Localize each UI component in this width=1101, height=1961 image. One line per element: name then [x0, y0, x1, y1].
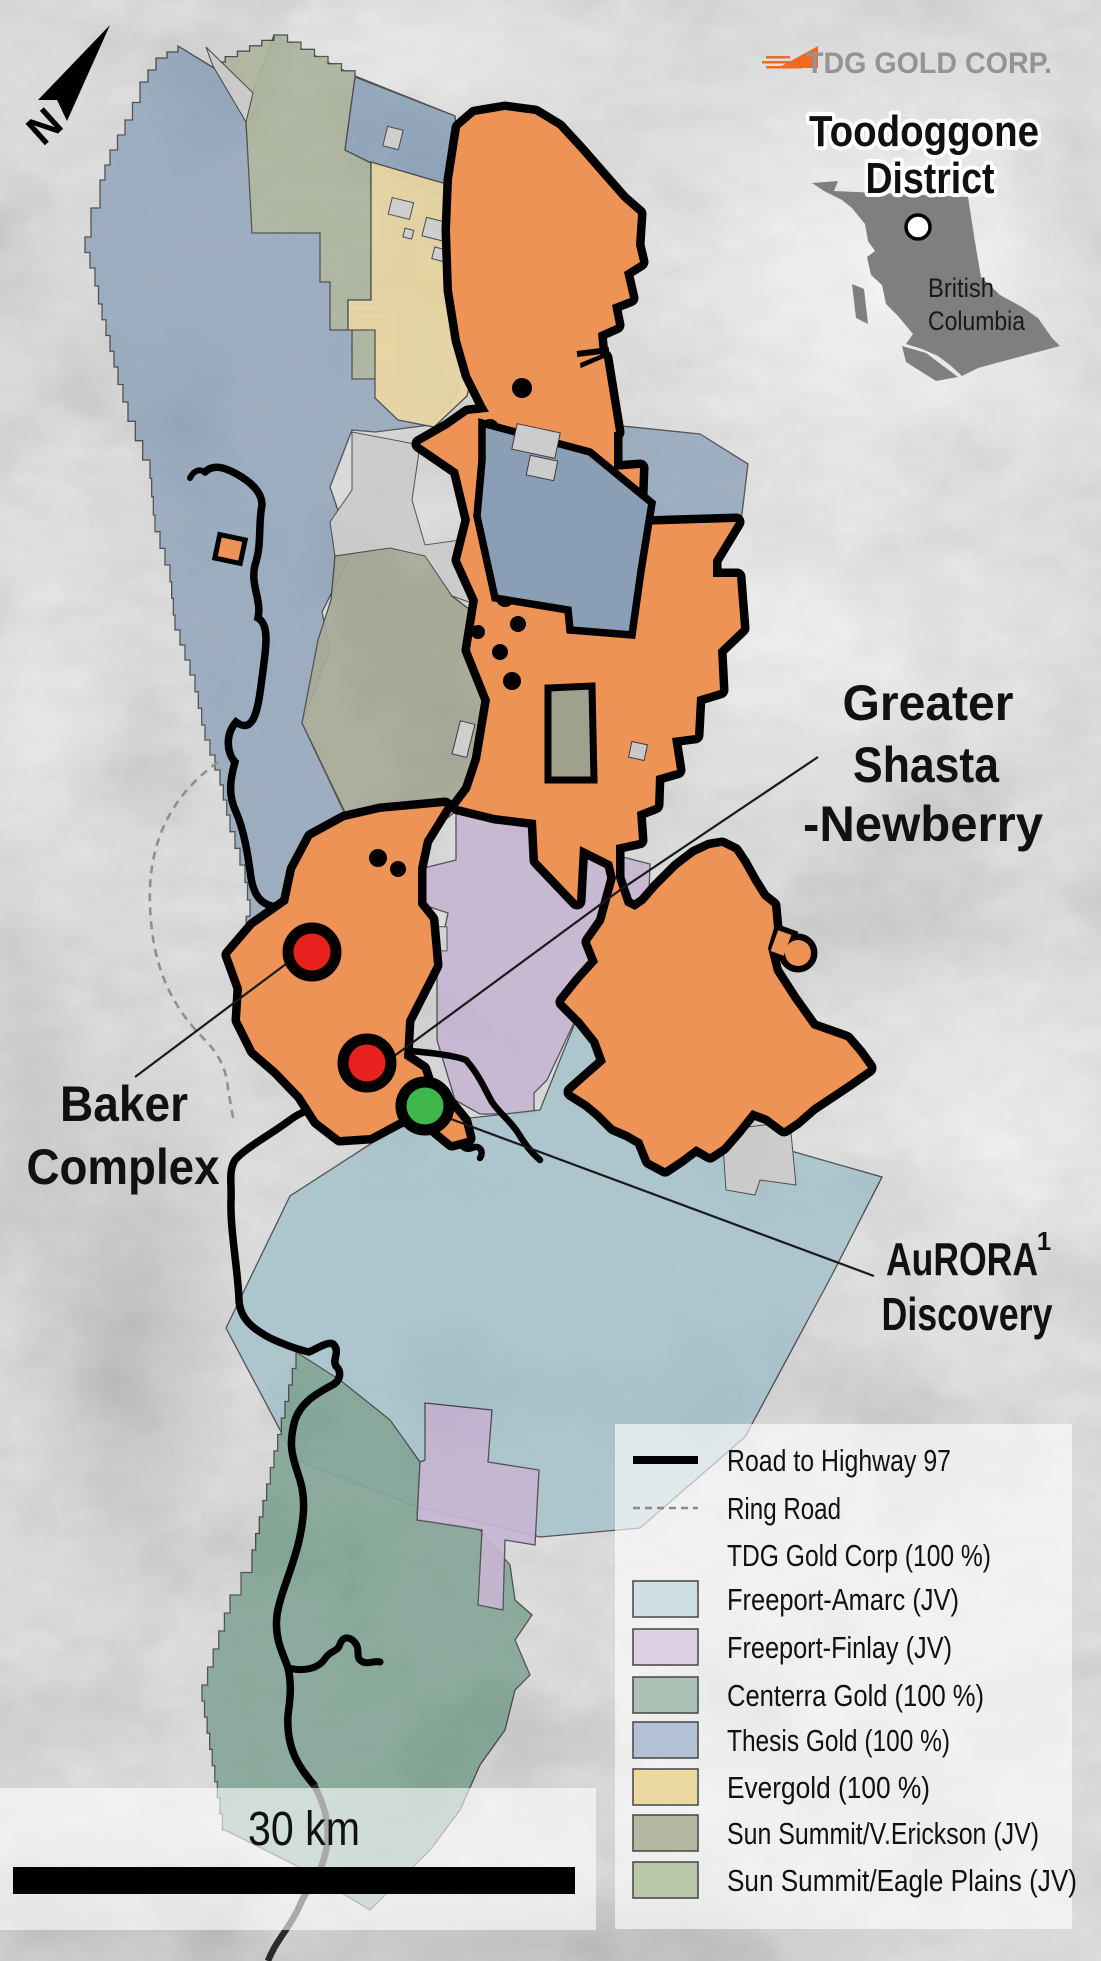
svg-text:Toodoggone: Toodoggone — [809, 107, 1039, 156]
svg-text:Road to Highway 97: Road to Highway 97 — [727, 1443, 951, 1478]
svg-text:Thesis Gold (100 %): Thesis Gold (100 %) — [727, 1723, 950, 1758]
svg-text:-Newberry: -Newberry — [803, 796, 1043, 852]
svg-text:1: 1 — [1037, 1226, 1051, 1256]
svg-text:Discovery: Discovery — [882, 1288, 1053, 1340]
svg-text:AuRORA: AuRORA — [886, 1233, 1038, 1285]
svg-text:TDG GOLD CORP.: TDG GOLD CORP. — [806, 47, 1052, 80]
svg-text:Freeport-Amarc (JV): Freeport-Amarc (JV) — [727, 1582, 959, 1617]
svg-text:TDG Gold Corp (100 %): TDG Gold Corp (100 %) — [727, 1538, 991, 1573]
svg-text:Freeport-Finlay (JV): Freeport-Finlay (JV) — [727, 1630, 952, 1665]
svg-text:Baker: Baker — [60, 1076, 188, 1132]
svg-text:Greater: Greater — [843, 675, 1014, 731]
svg-text:30 km: 30 km — [248, 1803, 360, 1856]
svg-text:District: District — [866, 154, 995, 203]
svg-text:Complex: Complex — [27, 1139, 220, 1195]
svg-text:Centerra Gold (100 %): Centerra Gold (100 %) — [727, 1678, 984, 1713]
svg-text:Evergold (100 %): Evergold (100 %) — [727, 1770, 930, 1805]
svg-text:Shasta: Shasta — [853, 737, 1000, 793]
svg-text:British: British — [928, 273, 994, 303]
svg-text:Ring Road: Ring Road — [727, 1491, 841, 1526]
svg-text:Columbia: Columbia — [928, 306, 1026, 336]
svg-text:Sun Summit/V.Erickson (JV): Sun Summit/V.Erickson (JV) — [727, 1816, 1039, 1851]
svg-text:Sun Summit/Eagle Plains (JV): Sun Summit/Eagle Plains (JV) — [727, 1863, 1077, 1898]
